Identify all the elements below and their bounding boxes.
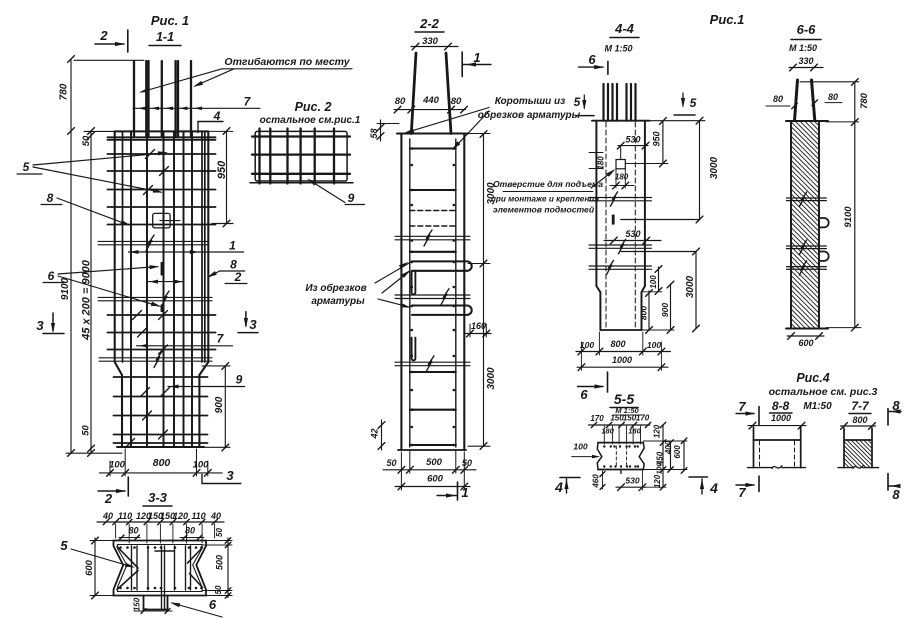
svg-text:при монтаже и крепления: при монтаже и крепления — [491, 195, 599, 204]
svg-text:800: 800 — [153, 457, 171, 469]
svg-text:800: 800 — [610, 339, 625, 349]
svg-text:330: 330 — [422, 36, 439, 47]
svg-text:180: 180 — [615, 173, 629, 182]
svg-text:100: 100 — [580, 340, 594, 350]
svg-text:2: 2 — [104, 491, 113, 506]
svg-text:150: 150 — [132, 597, 141, 611]
svg-text:800: 800 — [852, 415, 867, 425]
svg-text:80: 80 — [828, 92, 838, 102]
svg-text:950: 950 — [216, 160, 228, 179]
svg-text:Рис. 1: Рис. 1 — [151, 13, 189, 28]
svg-text:5: 5 — [574, 95, 581, 109]
svg-text:2: 2 — [234, 270, 242, 284]
svg-text:900: 900 — [214, 396, 225, 413]
svg-text:8: 8 — [892, 487, 900, 502]
svg-text:элементов подмостей: элементов подмостей — [493, 205, 595, 215]
svg-text:4-4: 4-4 — [614, 21, 635, 36]
svg-text:100: 100 — [109, 460, 126, 471]
svg-text:Коротыши из: Коротыши из — [495, 96, 566, 107]
svg-text:150: 150 — [623, 414, 637, 423]
svg-text:8-8: 8-8 — [772, 399, 790, 413]
svg-text:400: 400 — [664, 440, 673, 455]
svg-text:100: 100 — [656, 463, 663, 475]
svg-text:Рис.4: Рис.4 — [796, 371, 829, 385]
svg-text:9: 9 — [348, 191, 355, 205]
svg-text:6: 6 — [588, 52, 596, 67]
svg-text:М 1:50: М 1:50 — [789, 43, 817, 53]
svg-text:500: 500 — [426, 457, 443, 468]
svg-text:800: 800 — [638, 306, 648, 320]
svg-text:Рис. 2: Рис. 2 — [295, 100, 332, 114]
svg-text:110: 110 — [118, 511, 132, 521]
svg-text:600: 600 — [427, 474, 444, 485]
svg-text:600: 600 — [798, 338, 813, 348]
svg-text:600: 600 — [84, 559, 95, 576]
svg-text:40: 40 — [102, 511, 113, 521]
svg-text:530: 530 — [625, 229, 640, 239]
svg-text:500: 500 — [215, 555, 225, 570]
svg-text:40: 40 — [210, 511, 221, 521]
svg-text:обрезков арматуры: обрезков арматуры — [478, 109, 581, 121]
svg-text:7: 7 — [738, 399, 746, 414]
svg-text:50: 50 — [462, 458, 472, 468]
svg-text:3000: 3000 — [709, 156, 720, 179]
svg-text:460: 460 — [591, 474, 600, 489]
svg-text:110: 110 — [191, 511, 205, 521]
svg-text:остальное см. рис.3: остальное см. рис.3 — [769, 386, 878, 398]
svg-text:100: 100 — [649, 275, 658, 289]
svg-text:остальное см.рис.1: остальное см.рис.1 — [260, 115, 361, 126]
svg-text:4: 4 — [554, 479, 563, 495]
svg-text:Рис.1: Рис.1 — [710, 12, 745, 27]
svg-text:9: 9 — [236, 373, 243, 387]
svg-text:120: 120 — [652, 424, 661, 438]
svg-text:Из обрезков: Из обрезков — [305, 282, 366, 294]
svg-text:5: 5 — [60, 538, 68, 553]
svg-text:50: 50 — [215, 528, 224, 537]
svg-text:440: 440 — [422, 95, 440, 106]
svg-text:180: 180 — [628, 427, 641, 436]
svg-text:50: 50 — [214, 585, 223, 594]
svg-text:780: 780 — [59, 83, 70, 100]
svg-text:50: 50 — [81, 135, 92, 146]
svg-text:42: 42 — [370, 428, 380, 439]
svg-text:2-2: 2-2 — [419, 16, 440, 31]
svg-text:2: 2 — [99, 28, 108, 43]
svg-text:1000: 1000 — [771, 413, 791, 423]
svg-text:180: 180 — [596, 156, 605, 170]
svg-text:6-6: 6-6 — [797, 22, 817, 37]
svg-text:120: 120 — [653, 474, 662, 488]
svg-text:100: 100 — [193, 460, 210, 471]
svg-text:1: 1 — [229, 239, 236, 253]
svg-text:Отверстие для подъема: Отверстие для подъема — [493, 179, 603, 189]
svg-text:5: 5 — [23, 160, 30, 174]
svg-text:арматуры: арматуры — [311, 296, 365, 307]
svg-text:М 1:50: М 1:50 — [604, 44, 632, 54]
svg-text:100: 100 — [573, 442, 587, 452]
svg-text:1: 1 — [473, 50, 480, 65]
svg-text:9100: 9100 — [843, 206, 854, 228]
svg-text:530: 530 — [625, 135, 640, 145]
svg-text:50: 50 — [386, 458, 396, 468]
svg-text:1-1: 1-1 — [156, 30, 174, 44]
svg-text:4: 4 — [213, 109, 221, 123]
svg-text:170: 170 — [590, 414, 604, 423]
svg-text:600: 600 — [673, 445, 682, 459]
svg-text:80: 80 — [773, 94, 783, 104]
svg-text:6: 6 — [580, 387, 588, 402]
svg-text:3000: 3000 — [685, 275, 696, 298]
svg-text:330: 330 — [798, 56, 813, 66]
svg-text:6: 6 — [209, 597, 217, 612]
svg-text:М1:50: М1:50 — [803, 401, 832, 412]
svg-text:80: 80 — [128, 526, 138, 536]
svg-text:4: 4 — [709, 480, 718, 496]
svg-text:45 х 200 = 9000: 45 х 200 = 9000 — [80, 259, 92, 341]
svg-text:780: 780 — [859, 92, 870, 109]
svg-text:170: 170 — [636, 414, 650, 423]
svg-text:3: 3 — [36, 318, 44, 333]
svg-text:5-5: 5-5 — [614, 391, 634, 407]
svg-text:530: 530 — [625, 476, 639, 486]
svg-text:80: 80 — [451, 96, 462, 107]
svg-text:50: 50 — [80, 425, 91, 436]
svg-text:6: 6 — [48, 269, 55, 283]
svg-text:8: 8 — [47, 191, 54, 205]
svg-text:1000: 1000 — [612, 355, 632, 365]
svg-text:3: 3 — [226, 468, 234, 483]
svg-text:950: 950 — [652, 131, 662, 146]
svg-text:100: 100 — [647, 340, 661, 350]
svg-text:Отгибаются по месту: Отгибаются по месту — [224, 56, 350, 68]
svg-text:80: 80 — [185, 526, 195, 536]
svg-text:7: 7 — [738, 485, 746, 500]
svg-text:1: 1 — [461, 485, 468, 500]
svg-text:3000: 3000 — [486, 367, 497, 390]
svg-text:3: 3 — [249, 317, 257, 332]
svg-text:80: 80 — [395, 96, 406, 107]
svg-text:900: 900 — [660, 303, 670, 317]
svg-text:120: 120 — [173, 511, 188, 521]
svg-text:5: 5 — [690, 96, 697, 110]
svg-text:3-3: 3-3 — [148, 490, 168, 505]
svg-text:9100: 9100 — [60, 277, 71, 300]
svg-text:7-7: 7-7 — [851, 399, 870, 413]
